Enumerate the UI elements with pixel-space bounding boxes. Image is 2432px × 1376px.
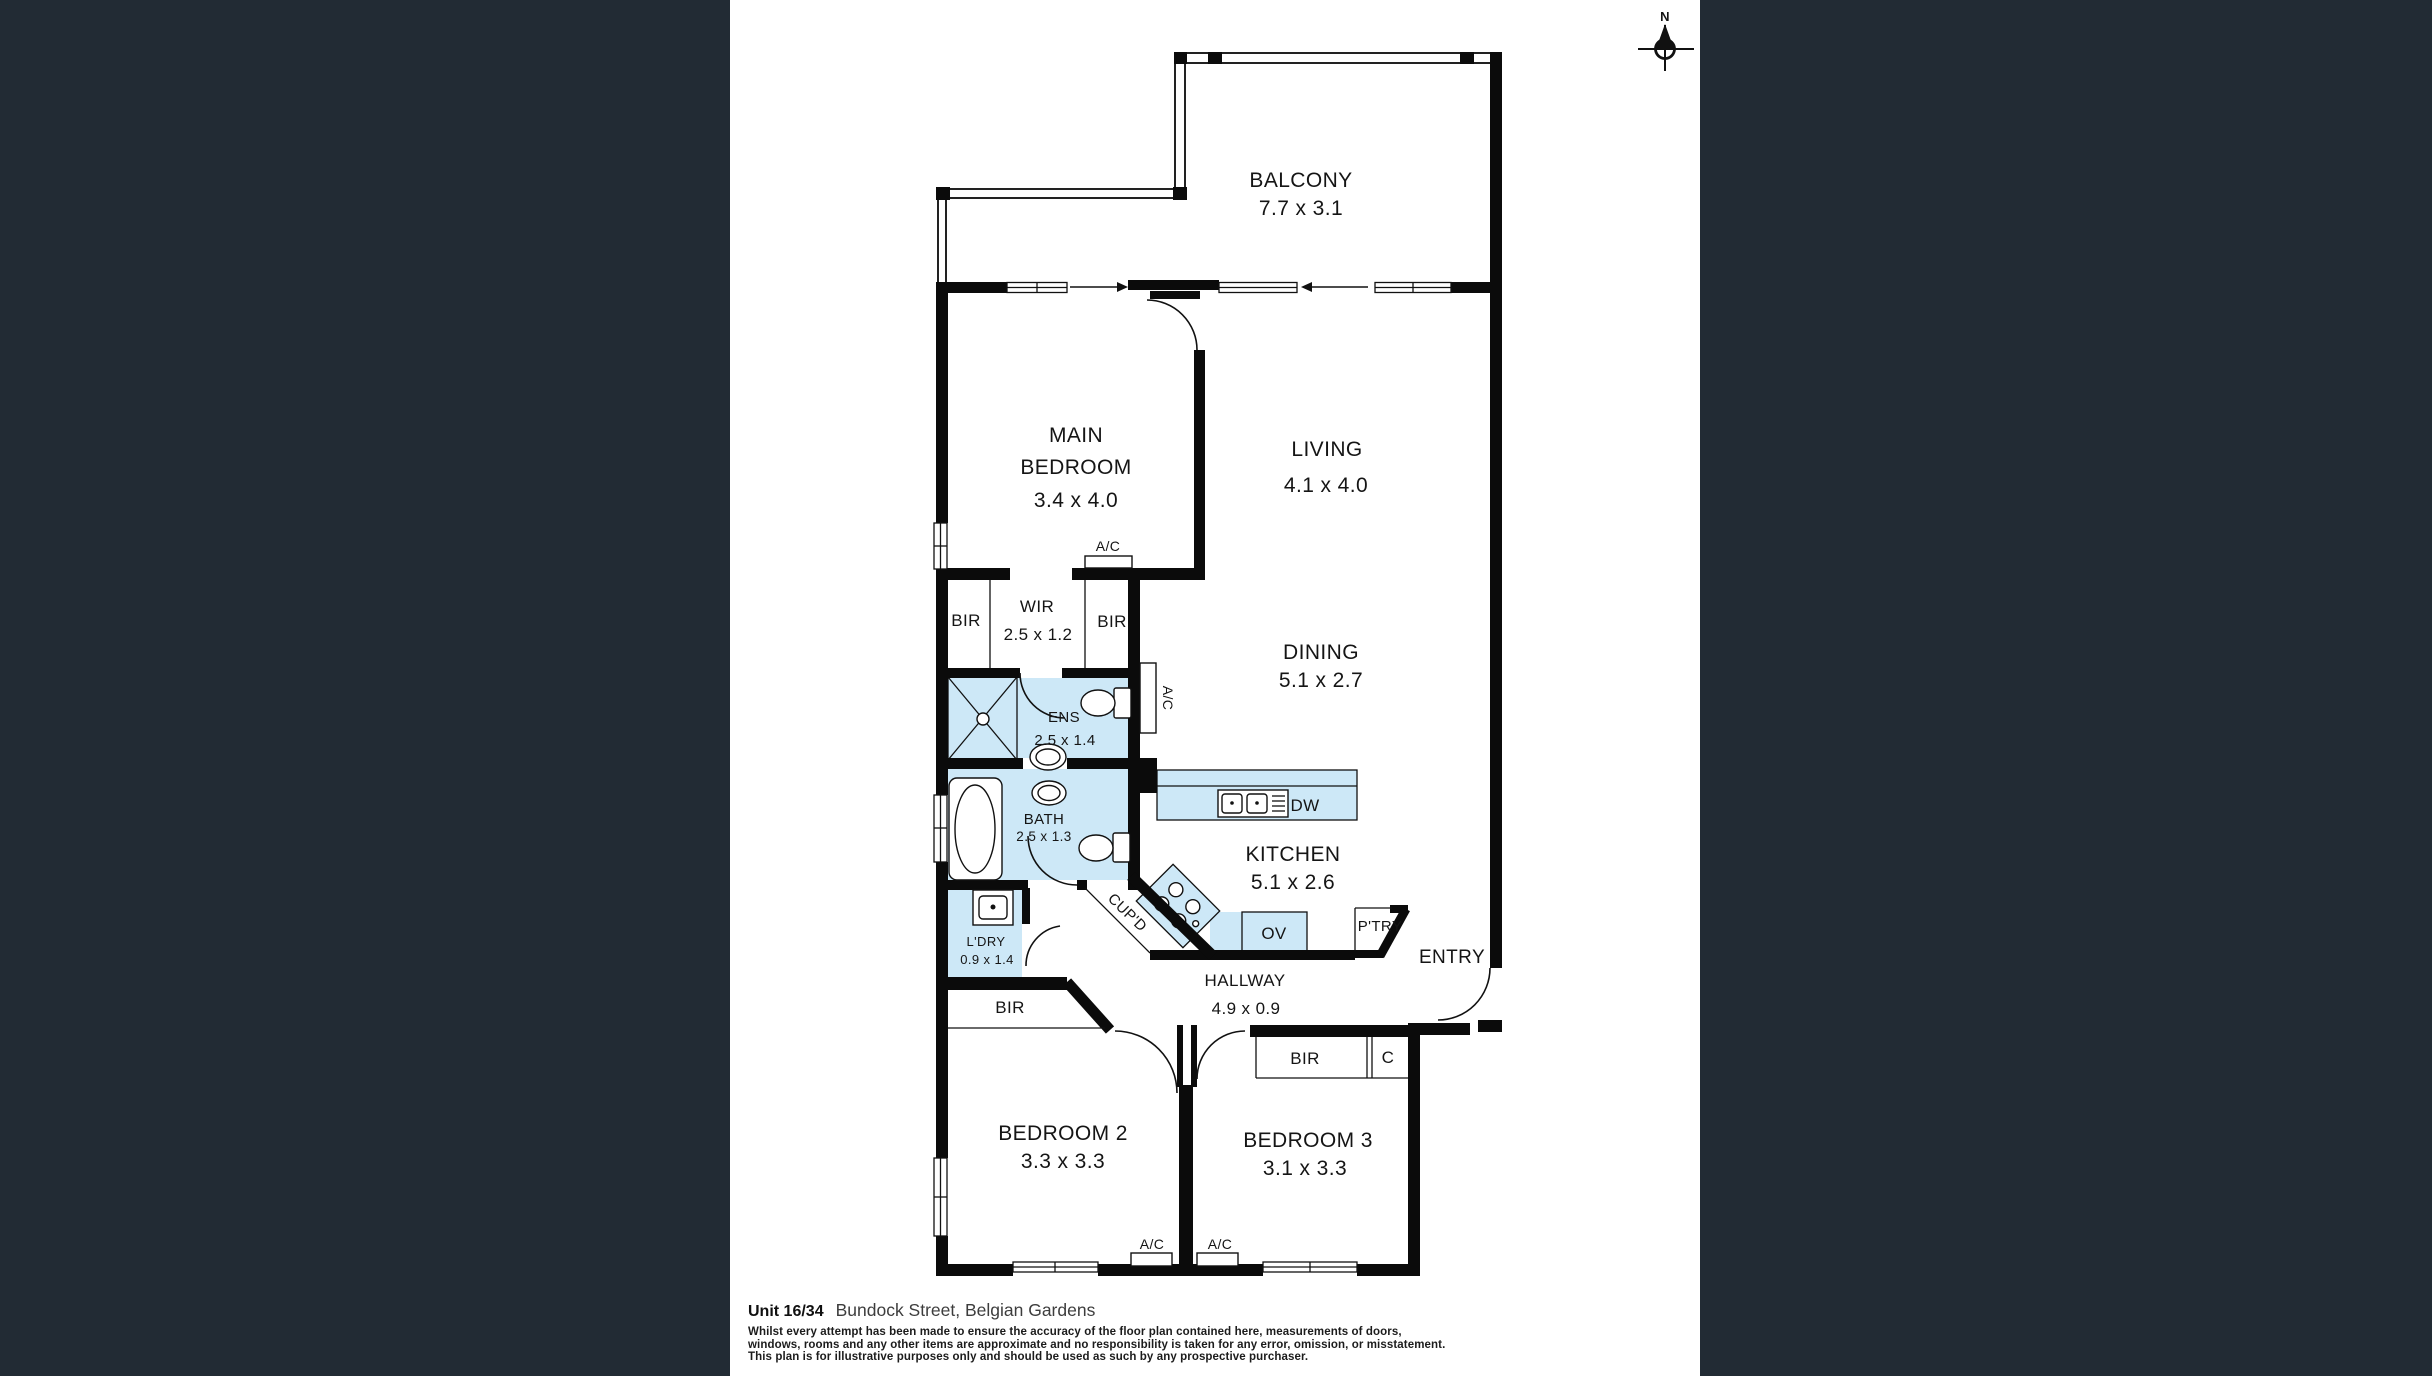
laundry-tub bbox=[973, 890, 1013, 925]
shower bbox=[948, 677, 1017, 760]
cooktop bbox=[1136, 864, 1219, 947]
room-label-ensuite: ENS bbox=[1048, 709, 1080, 726]
main-bedroom-door bbox=[1147, 300, 1197, 350]
room-dims-bath: 2.5 x 1.3 bbox=[1016, 829, 1071, 844]
north-arrow-icon bbox=[1656, 24, 1674, 49]
room-label-main-bedroom-line1: MAIN bbox=[1049, 424, 1103, 447]
disclaimer: Whilst every attempt has been made to en… bbox=[748, 1326, 1308, 1364]
walls bbox=[936, 52, 1502, 1276]
window bbox=[1375, 283, 1451, 293]
disclaimer-line: Whilst every attempt has been made to en… bbox=[748, 1326, 1308, 1339]
label-dishwasher: DW bbox=[1290, 796, 1319, 815]
room-label-hallway: HALLWAY bbox=[1205, 971, 1286, 990]
room-label-wir: WIR bbox=[1020, 597, 1054, 616]
room-dims-hallway: 4.9 x 0.9 bbox=[1212, 999, 1281, 1018]
disclaimer-line: windows, rooms and any other items are a… bbox=[748, 1339, 1308, 1352]
compass: N bbox=[1638, 9, 1694, 71]
room-label-bath: BATH bbox=[1024, 811, 1065, 828]
bathtub bbox=[949, 778, 1002, 880]
room-dims-bedroom2: 3.3 x 3.3 bbox=[1021, 1150, 1105, 1173]
room-label-kitchen: KITCHEN bbox=[1246, 843, 1341, 866]
room-dims-bedroom3: 3.1 x 3.3 bbox=[1263, 1157, 1347, 1180]
laundry-door bbox=[1026, 926, 1060, 966]
room-label-living: LIVING bbox=[1291, 438, 1362, 461]
room-label-dining: DINING bbox=[1283, 641, 1359, 664]
room-dims-laundry: 0.9 x 1.4 bbox=[960, 952, 1013, 967]
room-dims-kitchen: 5.1 x 2.6 bbox=[1251, 871, 1335, 894]
room-label-main-bedroom-line2: BEDROOM bbox=[1020, 456, 1131, 479]
disclaimer-line: This plan is for illustrative purposes o… bbox=[748, 1351, 1308, 1364]
label-aircon-bedroom3: A/C bbox=[1208, 1236, 1233, 1252]
label-aircon-bedroom2: A/C bbox=[1140, 1236, 1165, 1252]
street-address: Bundock Street, Belgian Gardens bbox=[836, 1300, 1096, 1321]
floorplan-page: N BALCONY 7.7 x 3.1 MAIN BEDROOM 3.4 x 4… bbox=[0, 0, 2432, 1376]
window bbox=[1219, 283, 1297, 293]
label-oven: OV bbox=[1261, 924, 1287, 943]
label-aircon-living: A/C bbox=[1160, 686, 1176, 711]
room-label-bedroom3: BEDROOM 3 bbox=[1243, 1129, 1373, 1152]
bedroom3-door bbox=[1197, 1031, 1245, 1079]
aircon-unit-main-bedroom bbox=[1085, 556, 1132, 568]
window bbox=[934, 795, 947, 862]
bath-basin bbox=[1032, 781, 1066, 805]
label-bir-left: BIR bbox=[951, 611, 981, 630]
aircon-unit-bedroom3 bbox=[1197, 1253, 1238, 1266]
footer: Unit 16/34 Bundock Street, Belgian Garde… bbox=[748, 1300, 1308, 1364]
room-dims-main-bedroom: 3.4 x 4.0 bbox=[1034, 489, 1118, 512]
window bbox=[1263, 1262, 1357, 1272]
window bbox=[1013, 1262, 1098, 1272]
room-dims-ensuite: 2.5 x 1.4 bbox=[1034, 732, 1095, 749]
room-label-entry: ENTRY bbox=[1419, 947, 1485, 968]
unit-number: Unit 16/34 bbox=[748, 1303, 824, 1321]
label-bir-right: BIR bbox=[1097, 612, 1127, 631]
window bbox=[1007, 283, 1067, 293]
room-dims-balcony: 7.7 x 3.1 bbox=[1259, 197, 1343, 220]
label-pantry: P'TRY bbox=[1358, 918, 1403, 935]
room-label-bedroom2: BEDROOM 2 bbox=[998, 1122, 1128, 1145]
bath-toilet bbox=[1079, 833, 1130, 862]
room-dims-living: 4.1 x 4.0 bbox=[1284, 474, 1368, 497]
label-aircon-main-bedroom: A/C bbox=[1096, 538, 1121, 554]
aircon-unit-living bbox=[1140, 663, 1156, 733]
ensuite-toilet bbox=[1081, 688, 1131, 718]
bedroom2-door bbox=[1115, 1031, 1177, 1093]
room-dims-wir: 2.5 x 1.2 bbox=[1004, 625, 1073, 644]
label-bir-bedroom3: BIR bbox=[1290, 1049, 1320, 1068]
room-dims-dining: 5.1 x 2.7 bbox=[1279, 669, 1363, 692]
entry-door bbox=[1438, 968, 1490, 1020]
aircon-unit-bedroom2 bbox=[1131, 1253, 1172, 1266]
room-label-balcony: BALCONY bbox=[1249, 169, 1352, 192]
kitchen-lower-bench bbox=[1210, 912, 1244, 952]
window bbox=[934, 523, 947, 569]
plan-title: Unit 16/34 Bundock Street, Belgian Garde… bbox=[748, 1300, 1308, 1321]
window bbox=[934, 1158, 947, 1236]
room-label-laundry: L'DRY bbox=[967, 934, 1006, 949]
label-closet: C bbox=[1382, 1048, 1395, 1067]
kitchen-sink bbox=[1218, 790, 1288, 817]
floor-plan-drawing: N BALCONY 7.7 x 3.1 MAIN BEDROOM 3.4 x 4… bbox=[0, 0, 2432, 1376]
balcony-railing bbox=[936, 52, 1496, 282]
label-bir-bedroom2: BIR bbox=[995, 998, 1025, 1017]
compass-north-label: N bbox=[1660, 9, 1670, 24]
